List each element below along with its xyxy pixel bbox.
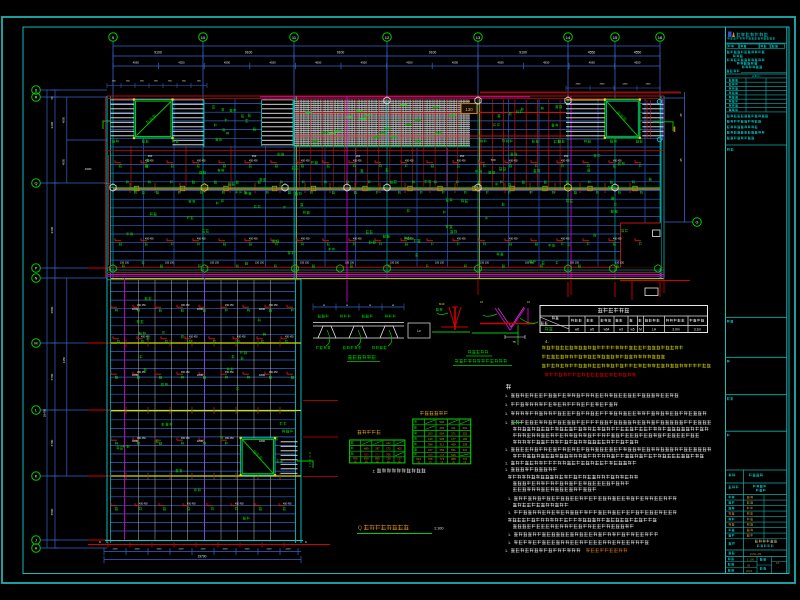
svg-text:402: 402 xyxy=(397,447,402,451)
svg-text:N: N xyxy=(35,277,38,281)
svg-text:450: 450 xyxy=(460,154,465,158)
svg-text:2024: 2024 xyxy=(746,569,753,573)
svg-text:150 150: 150 150 xyxy=(345,262,355,265)
svg-text:(d): (d) xyxy=(463,462,466,464)
svg-text:1800: 1800 xyxy=(197,373,204,377)
svg-text:277: 277 xyxy=(375,452,380,456)
svg-text:2200: 2200 xyxy=(201,549,207,551)
svg-text:9100: 9100 xyxy=(245,51,253,55)
svg-text:450 450: 450 450 xyxy=(225,304,234,307)
svg-text:15: 15 xyxy=(613,35,618,40)
svg-text:2200: 2200 xyxy=(223,549,229,551)
svg-text:450 450: 450 450 xyxy=(237,336,246,339)
svg-text:398: 398 xyxy=(428,443,433,447)
svg-text:J: J xyxy=(35,539,37,543)
svg-text:6700: 6700 xyxy=(50,439,54,446)
svg-text:(d): (d) xyxy=(440,462,443,464)
svg-text:717: 717 xyxy=(397,457,402,461)
svg-text:4550: 4550 xyxy=(269,61,276,65)
svg-text:591: 591 xyxy=(451,448,456,452)
svg-text:3.0m: 3.0m xyxy=(672,328,680,332)
svg-text:1.: 1. xyxy=(505,549,508,553)
svg-text:506: 506 xyxy=(439,420,444,424)
svg-text:150 150: 150 150 xyxy=(120,262,130,265)
svg-text:830: 830 xyxy=(364,457,369,461)
svg-text:450 450: 450 450 xyxy=(509,160,518,163)
svg-text:450 450: 450 450 xyxy=(181,304,190,307)
svg-text:6500: 6500 xyxy=(50,508,54,515)
svg-text:450 450: 450 450 xyxy=(197,238,206,241)
svg-text:450 450: 450 450 xyxy=(197,160,206,163)
svg-text:459: 459 xyxy=(451,443,456,447)
svg-text:1.: 1. xyxy=(505,394,508,398)
svg-text:297: 297 xyxy=(375,447,380,451)
svg-text:150 150: 150 150 xyxy=(210,262,220,265)
svg-text:450 450: 450 450 xyxy=(145,238,154,241)
svg-text:w64: w64 xyxy=(604,328,610,332)
svg-text:868: 868 xyxy=(451,457,456,461)
svg-text:208: 208 xyxy=(463,443,468,447)
svg-text:450 450: 450 450 xyxy=(145,160,154,163)
svg-text:w5: w5 xyxy=(630,328,634,332)
svg-text:4550: 4550 xyxy=(315,61,322,65)
svg-text:1800: 1800 xyxy=(259,439,266,443)
svg-text:450 450: 450 450 xyxy=(137,437,146,440)
svg-text:R: R xyxy=(35,96,38,100)
svg-text:150 150: 150 150 xyxy=(255,262,265,265)
svg-text:L: L xyxy=(35,409,37,413)
svg-text:1800: 1800 xyxy=(132,439,139,443)
svg-text:450 450: 450 450 xyxy=(235,503,244,506)
svg-text:183: 183 xyxy=(463,437,468,441)
svg-text:265: 265 xyxy=(439,426,444,430)
svg-text:1.: 1. xyxy=(508,497,511,501)
svg-text:2350: 2350 xyxy=(600,84,606,86)
svg-text:773: 773 xyxy=(439,457,444,461)
svg-text:1.: 1. xyxy=(505,412,508,416)
svg-text:450 450: 450 450 xyxy=(457,160,466,163)
svg-text:w: w xyxy=(323,304,325,307)
svg-text:45: 45 xyxy=(679,113,683,117)
svg-text:S: S xyxy=(35,89,38,93)
svg-text:150 150: 150 150 xyxy=(570,262,580,265)
svg-text:419: 419 xyxy=(428,437,433,441)
svg-text:4550: 4550 xyxy=(634,61,641,65)
svg-text:130: 130 xyxy=(465,107,473,112)
svg-text:4.: 4. xyxy=(545,339,549,344)
svg-text:(d): (d) xyxy=(452,462,455,464)
svg-text:447: 447 xyxy=(428,448,433,452)
svg-text:(d): (d) xyxy=(429,462,432,464)
svg-text:450 450: 450 450 xyxy=(269,304,278,307)
svg-text:w5: w5 xyxy=(590,328,594,332)
svg-text:150 150: 150 150 xyxy=(300,262,310,265)
svg-text:450 450: 450 450 xyxy=(189,336,198,339)
svg-text:14: 14 xyxy=(566,35,571,40)
svg-text:450 450: 450 450 xyxy=(181,371,190,374)
svg-text:450 450: 450 450 xyxy=(181,437,190,440)
svg-text:M19: M19 xyxy=(439,302,445,306)
svg-text:4550: 4550 xyxy=(406,61,413,65)
svg-text:75: 75 xyxy=(512,340,516,344)
svg-text:331: 331 xyxy=(463,448,468,452)
svg-text:450: 450 xyxy=(356,154,361,158)
svg-text:450 450: 450 450 xyxy=(269,371,278,374)
svg-text:4550: 4550 xyxy=(497,61,504,65)
svg-text:4550: 4550 xyxy=(543,61,550,65)
svg-text:10: 10 xyxy=(201,35,206,40)
svg-text:1:100: 1:100 xyxy=(434,527,444,531)
svg-text:2200: 2200 xyxy=(245,549,251,551)
svg-text:450 450: 450 450 xyxy=(353,238,362,241)
svg-text:(d): (d) xyxy=(398,462,401,464)
svg-text:4550: 4550 xyxy=(224,61,231,65)
svg-text:271: 271 xyxy=(451,432,456,436)
svg-text:4550: 4550 xyxy=(178,61,185,65)
svg-text:150 150: 150 150 xyxy=(615,262,625,265)
svg-text:203: 203 xyxy=(428,432,433,436)
svg-text:2200: 2200 xyxy=(179,549,185,551)
svg-text:1.: 1. xyxy=(505,462,508,466)
svg-text:706: 706 xyxy=(386,452,391,456)
svg-text:26400: 26400 xyxy=(43,408,47,417)
svg-text:LH: LH xyxy=(652,328,657,332)
svg-text:312: 312 xyxy=(439,443,444,447)
svg-text:6500: 6500 xyxy=(50,306,54,313)
svg-text:311: 311 xyxy=(451,426,456,430)
svg-text:K: K xyxy=(35,475,38,479)
svg-text:4550: 4550 xyxy=(62,158,66,165)
svg-text:489: 489 xyxy=(364,447,369,451)
svg-text:450 450: 450 450 xyxy=(225,371,234,374)
svg-text:150 150: 150 150 xyxy=(165,262,175,265)
svg-text:212: 212 xyxy=(386,441,391,445)
svg-text:45: 45 xyxy=(679,158,683,162)
svg-text:450 450: 450 450 xyxy=(613,160,622,163)
svg-text:16: 16 xyxy=(658,35,663,40)
svg-text:450: 450 xyxy=(148,154,153,158)
svg-text:450 450: 450 450 xyxy=(561,238,570,241)
svg-text:1.: 1. xyxy=(508,541,511,545)
svg-text:150 150: 150 150 xyxy=(390,262,400,265)
svg-text:G: G xyxy=(696,221,699,225)
svg-text:623: 623 xyxy=(416,457,421,461)
svg-text:K: K xyxy=(305,540,307,544)
svg-text:3.1m: 3.1m xyxy=(694,328,702,332)
svg-text:Q: Q xyxy=(358,526,362,532)
svg-text:9100: 9100 xyxy=(429,51,437,55)
svg-text:K: K xyxy=(99,540,101,544)
svg-text:1800: 1800 xyxy=(259,373,266,377)
svg-text:4550: 4550 xyxy=(361,61,368,65)
svg-text:450 450: 450 450 xyxy=(561,160,570,163)
svg-text:4550: 4550 xyxy=(588,51,596,55)
svg-text:2200: 2200 xyxy=(157,549,163,551)
svg-text:450 450: 450 450 xyxy=(249,160,258,163)
svg-text:2xSL-03: 2xSL-03 xyxy=(750,552,762,556)
svg-text:528: 528 xyxy=(439,437,444,441)
svg-text:654: 654 xyxy=(439,432,444,436)
svg-text:855: 855 xyxy=(375,457,380,461)
svg-text:172: 172 xyxy=(386,447,391,451)
svg-text:737: 737 xyxy=(463,457,468,461)
svg-text:2350: 2350 xyxy=(576,84,582,86)
svg-text:2200: 2200 xyxy=(267,549,273,551)
svg-text:4550: 4550 xyxy=(133,61,140,65)
svg-text:w: w xyxy=(346,304,348,307)
svg-text:450 450: 450 450 xyxy=(353,160,362,163)
svg-text:450 450: 450 450 xyxy=(509,238,518,241)
svg-text:19700: 19700 xyxy=(198,555,207,559)
svg-text:450 450: 450 450 xyxy=(137,304,146,307)
svg-text:2350: 2350 xyxy=(623,84,629,86)
svg-text:05: 05 xyxy=(747,564,751,568)
svg-text:(d): (d) xyxy=(417,462,420,464)
svg-text:1.: 1. xyxy=(505,421,508,425)
svg-text:450 450: 450 450 xyxy=(457,238,466,241)
svg-text:w: w xyxy=(369,304,371,307)
svg-text:252: 252 xyxy=(463,432,468,436)
svg-text:450 450: 450 450 xyxy=(301,238,310,241)
svg-text:1800: 1800 xyxy=(197,307,204,311)
svg-text:(d): (d) xyxy=(387,462,390,464)
svg-text:2200: 2200 xyxy=(135,549,141,551)
svg-text:P: P xyxy=(35,267,38,271)
svg-text:1800: 1800 xyxy=(132,373,139,377)
svg-text:450 450: 450 450 xyxy=(225,437,234,440)
svg-text:w6: w6 xyxy=(575,328,579,332)
svg-text:150 150: 150 150 xyxy=(435,262,445,265)
svg-text:2350: 2350 xyxy=(646,84,652,86)
svg-text:1500: 1500 xyxy=(85,167,92,171)
svg-text:(d): (d) xyxy=(354,462,357,464)
svg-text:564: 564 xyxy=(463,426,468,430)
svg-text:1.: 1. xyxy=(505,403,508,407)
svg-text:9100: 9100 xyxy=(154,51,162,55)
svg-text:150 150: 150 150 xyxy=(480,262,490,265)
svg-text:1.: 1. xyxy=(505,468,508,472)
svg-text:1:100: 1:100 xyxy=(747,558,754,562)
svg-text:4550: 4550 xyxy=(62,116,66,123)
svg-text:9100: 9100 xyxy=(519,51,527,55)
svg-text:1.: 1. xyxy=(505,448,508,452)
svg-text:4550: 4550 xyxy=(634,51,642,55)
svg-text:M: M xyxy=(639,328,642,332)
svg-text:2200: 2200 xyxy=(113,549,119,551)
svg-text:177: 177 xyxy=(451,437,456,441)
svg-text:766: 766 xyxy=(428,457,433,461)
svg-text:450 450: 450 450 xyxy=(613,238,622,241)
svg-text:450: 450 xyxy=(564,154,569,158)
svg-text:450 450: 450 450 xyxy=(249,238,258,241)
svg-text:1800: 1800 xyxy=(132,307,139,311)
svg-text:450 450: 450 450 xyxy=(187,503,196,506)
svg-text:450 450: 450 450 xyxy=(137,371,146,374)
svg-text:10: 10 xyxy=(527,300,531,304)
svg-text:450 450: 450 450 xyxy=(405,238,414,241)
svg-text:(d): (d) xyxy=(365,462,368,464)
svg-text:(d): (d) xyxy=(376,462,379,464)
svg-text:1.: 1. xyxy=(508,533,511,537)
svg-text:450 450: 450 450 xyxy=(405,160,414,163)
svg-text:Lc: Lc xyxy=(417,329,421,333)
svg-text:13: 13 xyxy=(476,35,481,40)
svg-text:4550: 4550 xyxy=(452,61,459,65)
svg-text:H: H xyxy=(35,547,38,551)
svg-text:9100: 9100 xyxy=(337,51,345,55)
svg-text:700: 700 xyxy=(490,158,495,162)
svg-text:9100: 9100 xyxy=(50,226,54,233)
svg-text:w: w xyxy=(392,304,394,307)
svg-text:6700: 6700 xyxy=(50,373,54,380)
svg-text:12: 12 xyxy=(385,35,390,40)
svg-text:M: M xyxy=(34,342,37,346)
svg-text:1.: 1. xyxy=(508,511,511,515)
svg-text:10: 10 xyxy=(480,300,484,304)
svg-text:1800: 1800 xyxy=(259,307,266,311)
svg-text:726: 726 xyxy=(386,457,391,461)
svg-text:255: 255 xyxy=(439,448,444,452)
svg-text:w3: w3 xyxy=(619,328,623,332)
svg-text:450: 450 xyxy=(252,154,257,158)
svg-text:769: 769 xyxy=(353,457,358,461)
svg-text:1/1: 1/1 xyxy=(776,561,780,565)
svg-text:450 450: 450 450 xyxy=(285,336,294,339)
svg-text:9100: 9100 xyxy=(50,121,54,128)
svg-text:2200: 2200 xyxy=(286,549,292,551)
svg-text:Q: Q xyxy=(35,182,38,186)
svg-text:450 450: 450 450 xyxy=(301,160,310,163)
svg-text:1350: 1350 xyxy=(62,356,66,363)
svg-text:450 450: 450 450 xyxy=(283,503,292,506)
svg-text:359: 359 xyxy=(364,452,369,456)
svg-text:450 450: 450 450 xyxy=(139,503,148,506)
svg-text:4550: 4550 xyxy=(589,61,596,65)
svg-text:1800: 1800 xyxy=(197,439,204,443)
